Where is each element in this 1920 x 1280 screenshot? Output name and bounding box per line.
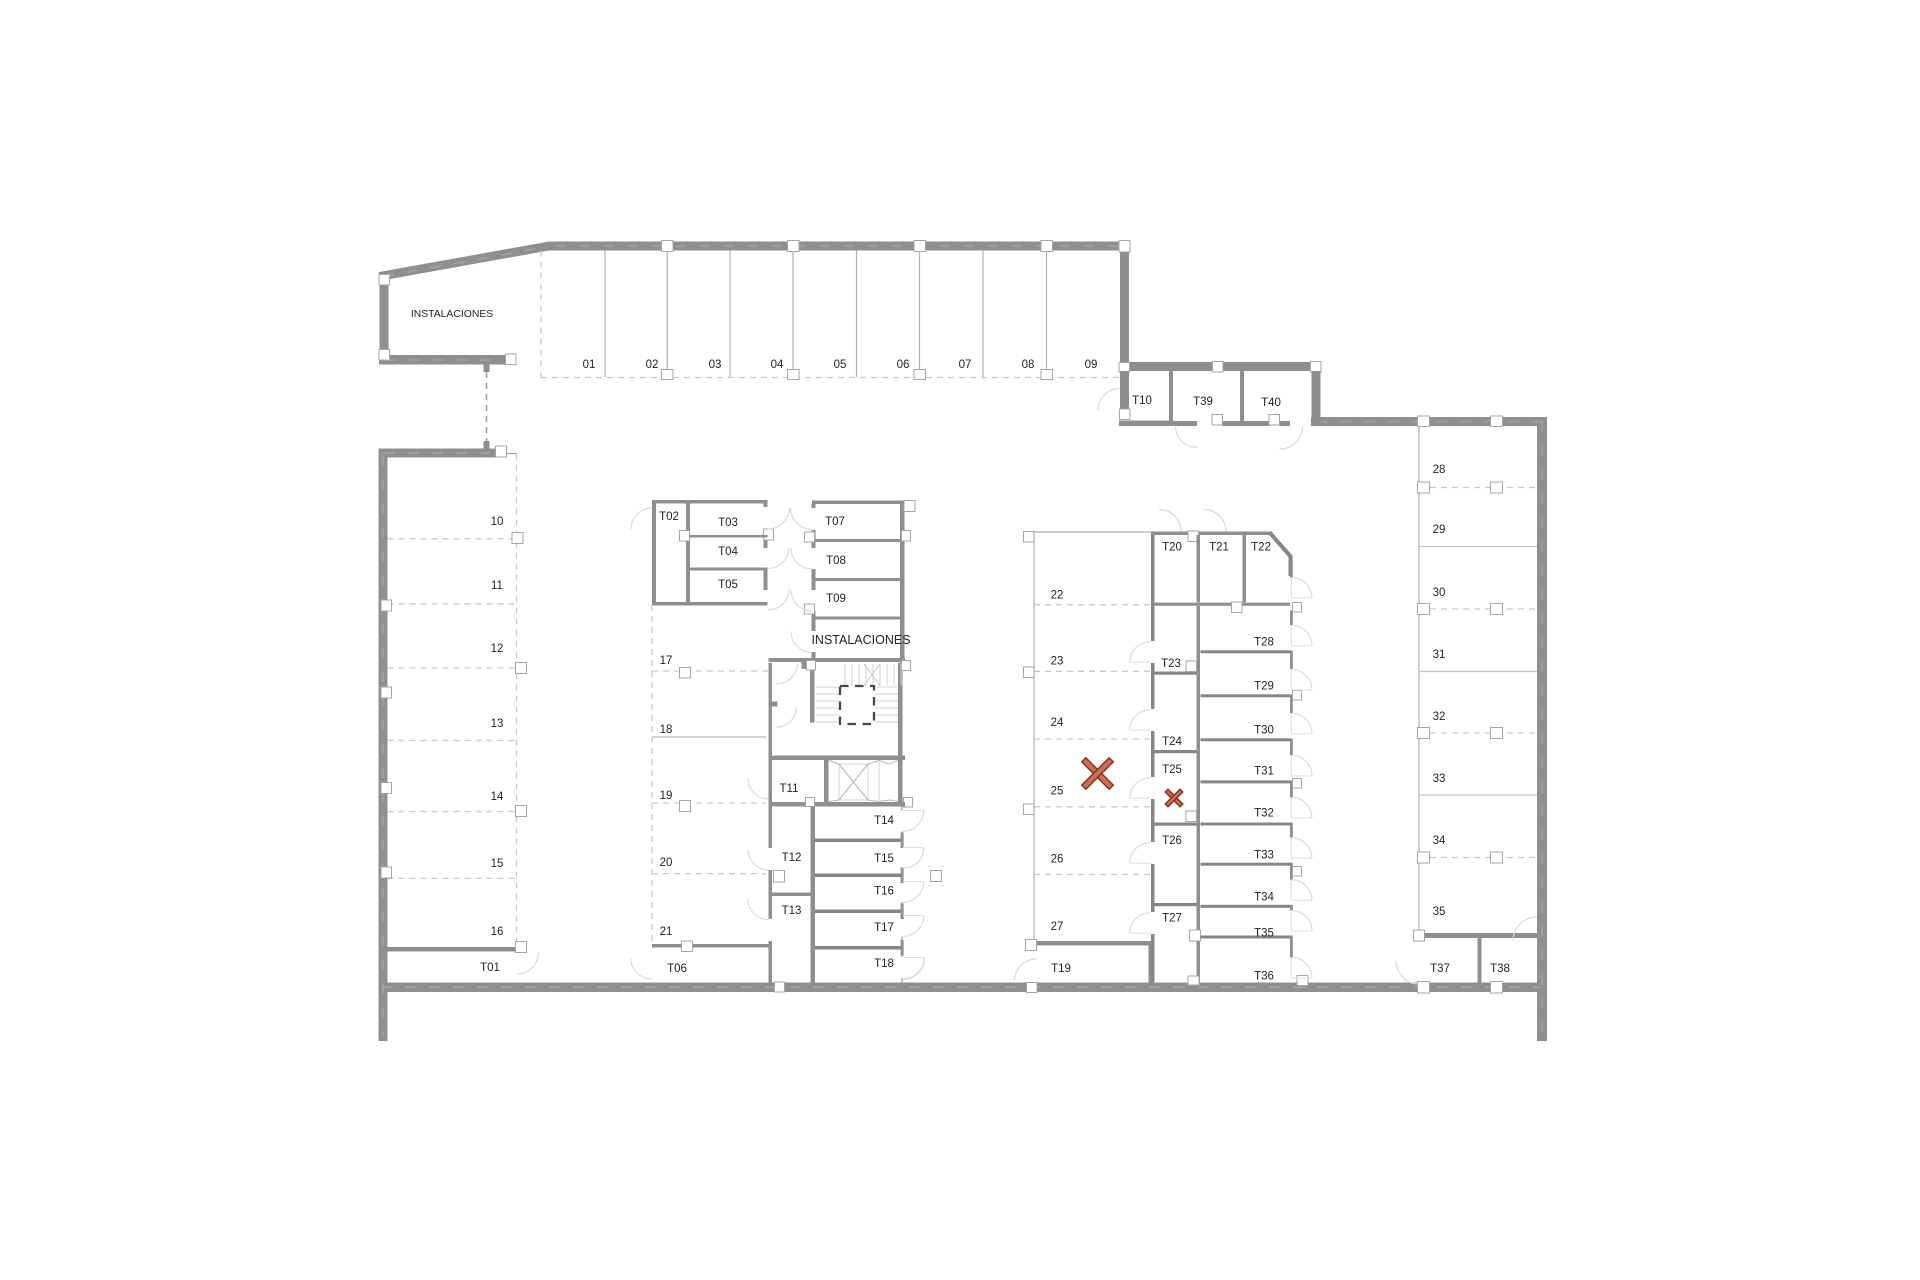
svg-text:25: 25 (1051, 786, 1064, 798)
svg-text:T35: T35 (1254, 928, 1274, 940)
svg-text:T38: T38 (1490, 963, 1510, 975)
svg-text:13: 13 (491, 718, 504, 730)
svg-text:T09: T09 (826, 593, 846, 605)
svg-text:T27: T27 (1162, 913, 1182, 925)
svg-text:10: 10 (491, 516, 504, 528)
svg-text:T32: T32 (1254, 808, 1274, 820)
svg-text:23: 23 (1051, 656, 1064, 668)
svg-text:17: 17 (660, 655, 673, 667)
svg-text:T22: T22 (1251, 542, 1271, 554)
svg-text:05: 05 (834, 359, 847, 371)
svg-text:T13: T13 (782, 905, 802, 917)
svg-text:T01: T01 (480, 962, 500, 974)
svg-text:T06: T06 (667, 963, 687, 975)
svg-text:03: 03 (709, 359, 722, 371)
svg-text:33: 33 (1433, 773, 1446, 785)
svg-text:T03: T03 (718, 517, 738, 529)
svg-text:T24: T24 (1162, 736, 1182, 748)
svg-text:T04: T04 (718, 546, 738, 558)
svg-text:T30: T30 (1254, 725, 1274, 737)
svg-text:02: 02 (646, 359, 659, 371)
svg-text:15: 15 (491, 858, 504, 870)
svg-text:T21: T21 (1209, 542, 1229, 554)
svg-text:26: 26 (1051, 854, 1064, 866)
svg-text:16: 16 (491, 926, 504, 938)
svg-text:T34: T34 (1254, 892, 1274, 904)
svg-text:T40: T40 (1261, 397, 1281, 409)
svg-text:T28: T28 (1254, 637, 1274, 649)
svg-text:T17: T17 (874, 922, 894, 934)
svg-text:T15: T15 (874, 853, 894, 865)
svg-text:24: 24 (1051, 717, 1064, 729)
svg-text:04: 04 (771, 359, 784, 371)
svg-text:35: 35 (1433, 906, 1446, 918)
svg-text:14: 14 (491, 791, 504, 803)
svg-text:T08: T08 (826, 555, 846, 567)
svg-text:T18: T18 (874, 958, 894, 970)
svg-text:18: 18 (660, 724, 673, 736)
svg-text:29: 29 (1433, 524, 1446, 536)
svg-text:31: 31 (1433, 649, 1446, 661)
svg-text:12: 12 (491, 643, 504, 655)
svg-text:T26: T26 (1162, 835, 1182, 847)
svg-text:01: 01 (583, 359, 596, 371)
svg-text:T39: T39 (1193, 396, 1213, 408)
svg-text:06: 06 (897, 359, 910, 371)
svg-text:T25: T25 (1162, 764, 1182, 776)
svg-text:28: 28 (1433, 464, 1446, 476)
svg-text:T05: T05 (718, 579, 738, 591)
svg-text:T37: T37 (1430, 963, 1450, 975)
svg-text:20: 20 (660, 857, 673, 869)
svg-text:07: 07 (959, 359, 972, 371)
svg-text:INSTALACIONES: INSTALACIONES (811, 633, 910, 647)
svg-text:T23: T23 (1161, 658, 1181, 670)
svg-text:T14: T14 (874, 815, 894, 827)
svg-text:T36: T36 (1254, 971, 1274, 983)
svg-text:T10: T10 (1132, 395, 1152, 407)
svg-text:32: 32 (1433, 711, 1446, 723)
svg-text:T33: T33 (1254, 850, 1274, 862)
svg-text:T19: T19 (1051, 963, 1071, 975)
svg-text:T11: T11 (780, 783, 799, 795)
svg-text:T12: T12 (782, 852, 802, 864)
svg-text:09: 09 (1085, 359, 1098, 371)
svg-text:T16: T16 (874, 886, 894, 898)
svg-text:T31: T31 (1254, 766, 1274, 778)
svg-text:INSTALACIONES: INSTALACIONES (411, 309, 493, 320)
svg-text:T02: T02 (659, 511, 679, 523)
svg-text:T29: T29 (1254, 681, 1274, 693)
svg-text:22: 22 (1051, 590, 1064, 602)
svg-text:21: 21 (660, 926, 673, 938)
svg-text:34: 34 (1433, 835, 1446, 847)
svg-text:11: 11 (491, 580, 503, 592)
svg-text:T07: T07 (825, 516, 845, 528)
svg-text:30: 30 (1433, 587, 1446, 599)
svg-text:27: 27 (1051, 921, 1064, 933)
svg-text:08: 08 (1022, 359, 1035, 371)
svg-text:19: 19 (660, 790, 673, 802)
svg-text:T20: T20 (1162, 542, 1182, 554)
